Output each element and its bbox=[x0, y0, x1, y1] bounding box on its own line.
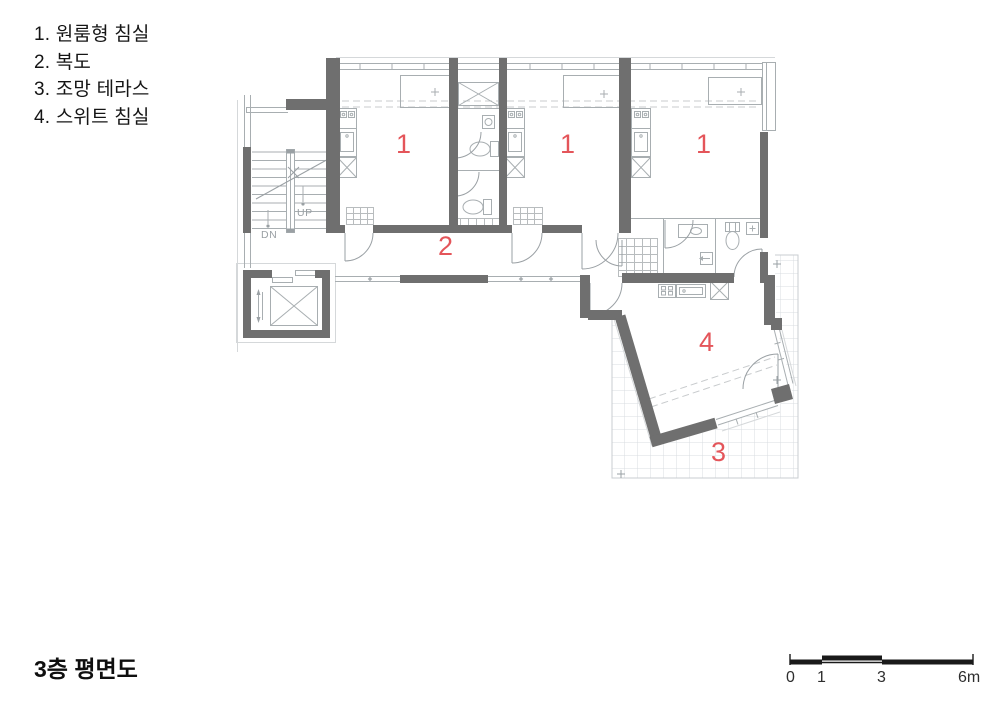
stairs-up-label: UP bbox=[297, 207, 313, 219]
room-label-terrace: 3 bbox=[711, 439, 726, 466]
toilet-icon bbox=[463, 142, 499, 215]
room-label-studio-2: 1 bbox=[560, 131, 575, 158]
floor-plan-page: { "legend": { "items": ["1. 원룸형 침실", "2.… bbox=[0, 0, 1000, 707]
sink-icon bbox=[483, 116, 495, 129]
room-label-studio-3: 1 bbox=[696, 131, 711, 158]
room-label-studio-1: 1 bbox=[396, 131, 411, 158]
bathroom-strip bbox=[452, 109, 505, 215]
legend: 1. 원룸형 침실 2. 복도 3. 조망 테라스 4. 스위트 침실 bbox=[34, 21, 150, 131]
scale-label-1: 1 bbox=[817, 669, 826, 687]
stairs-down-label: DN bbox=[261, 229, 277, 241]
room-label-suite: 4 bbox=[699, 329, 714, 356]
scale-label-3: 3 bbox=[877, 669, 886, 687]
scale-bar bbox=[790, 654, 973, 665]
legend-item: 3. 조망 테라스 bbox=[34, 76, 150, 104]
scale-label-0: 0 bbox=[786, 669, 795, 687]
room-label-corridor: 2 bbox=[438, 233, 453, 260]
scale-label-6m: 6m bbox=[958, 669, 980, 687]
elevator bbox=[257, 271, 318, 326]
shaft-icon bbox=[459, 83, 499, 106]
floor-plan-drawing bbox=[0, 0, 1000, 707]
stairs bbox=[252, 150, 332, 233]
legend-item: 1. 원룸형 침실 bbox=[34, 21, 150, 49]
legend-item: 2. 복도 bbox=[34, 49, 150, 77]
legend-item: 4. 스위트 침실 bbox=[34, 104, 150, 132]
page-title: 3층 평면도 bbox=[34, 650, 138, 684]
